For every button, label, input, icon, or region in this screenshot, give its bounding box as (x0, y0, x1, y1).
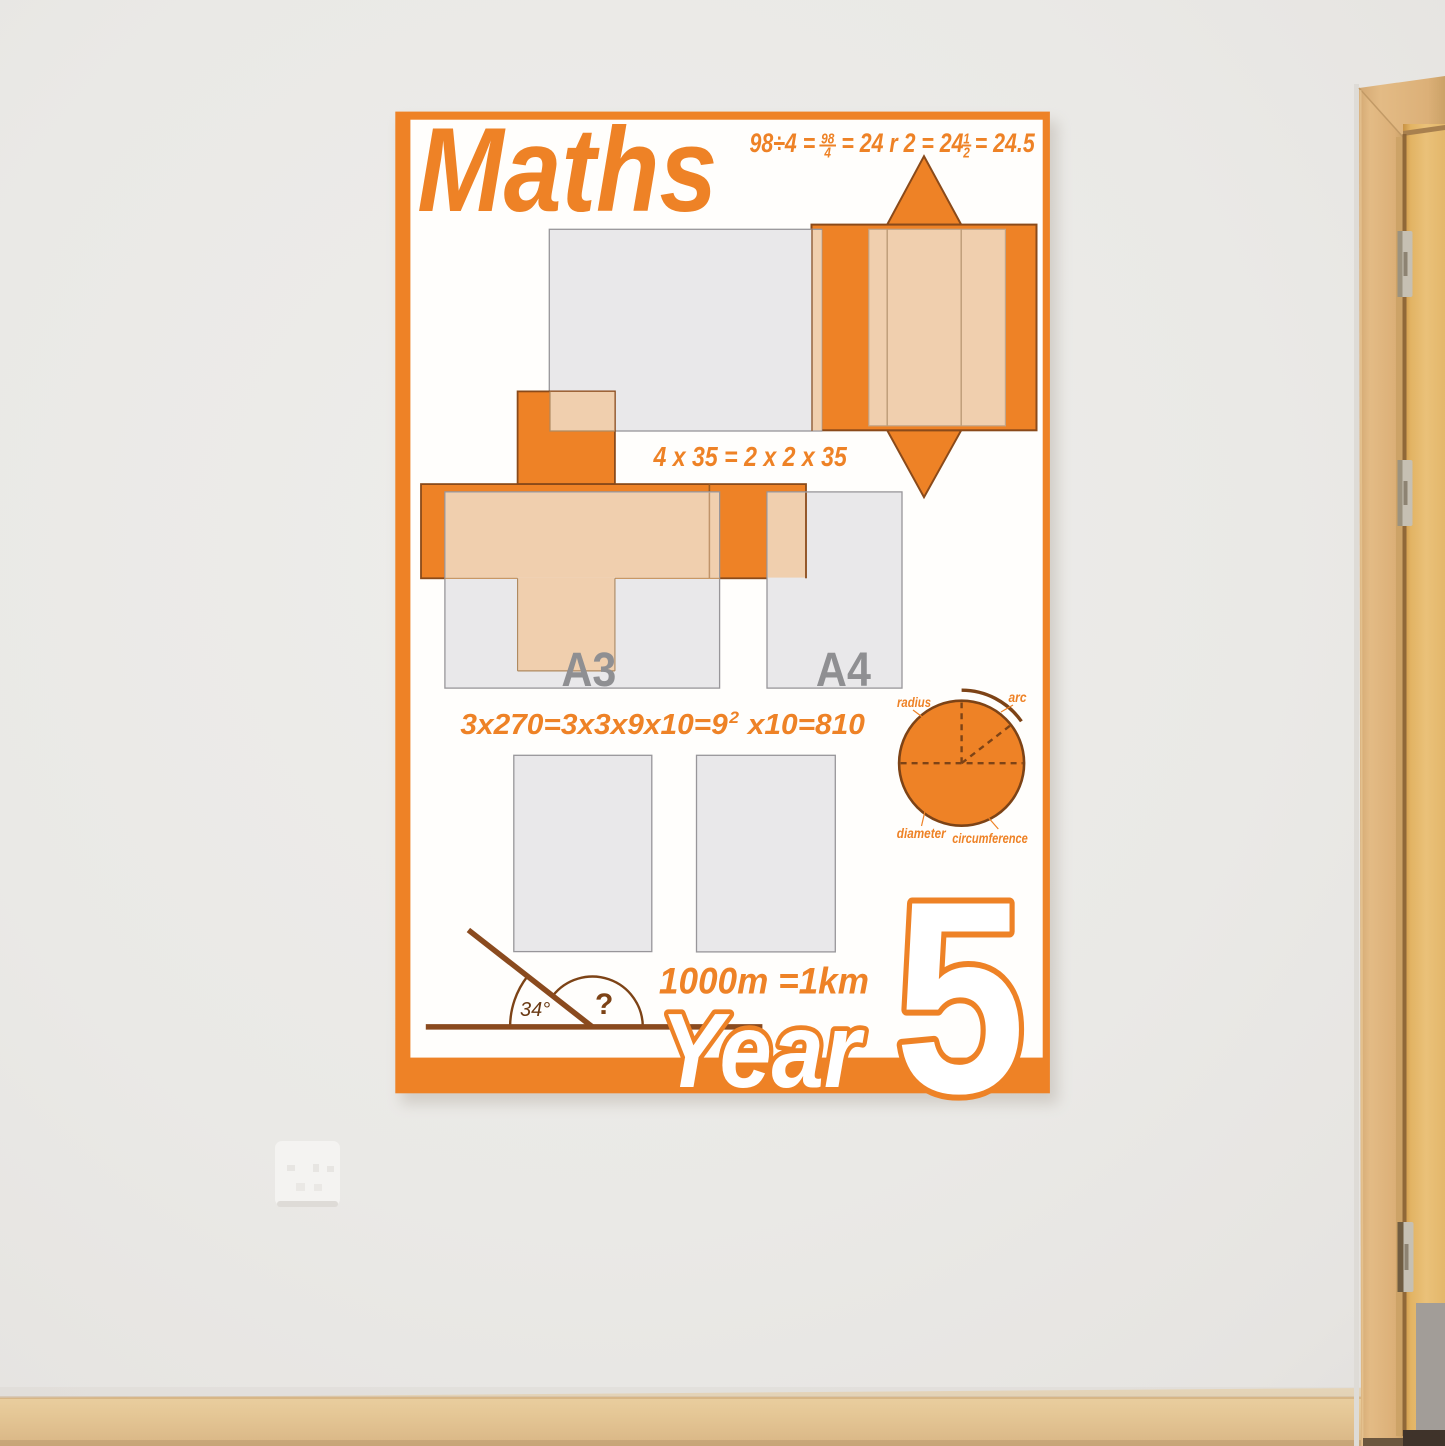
svg-text:2: 2 (728, 707, 739, 727)
svg-text:2: 2 (962, 144, 970, 161)
svg-text:4 x 35 = 2 x 2 x 35: 4 x 35 = 2 x 2 x 35 (653, 442, 848, 473)
svg-text:98÷4 =: 98÷4 = (750, 129, 816, 159)
svg-text:circumference: circumference (952, 831, 1028, 846)
svg-text:A3: A3 (561, 643, 616, 697)
svg-text:5: 5 (895, 845, 1026, 1151)
svg-text:3x270=3x3x9x10=9: 3x270=3x3x9x10=9 (460, 708, 728, 741)
svg-text:= 24 r 2 = 24: = 24 r 2 = 24 (841, 129, 964, 159)
svg-text:?: ? (595, 988, 613, 1021)
svg-text:34°: 34° (520, 999, 550, 1021)
svg-text:diameter: diameter (897, 826, 947, 841)
svg-text:radius: radius (897, 695, 931, 710)
svg-text:4: 4 (824, 144, 832, 161)
svg-text:x10=810: x10=810 (746, 708, 866, 741)
svg-text:arc: arc (1009, 689, 1027, 705)
svg-text:A4: A4 (816, 643, 872, 697)
svg-text:Year: Year (660, 992, 865, 1111)
svg-text:Maths: Maths (417, 102, 717, 237)
svg-text:= 24.5: = 24.5 (975, 129, 1035, 159)
